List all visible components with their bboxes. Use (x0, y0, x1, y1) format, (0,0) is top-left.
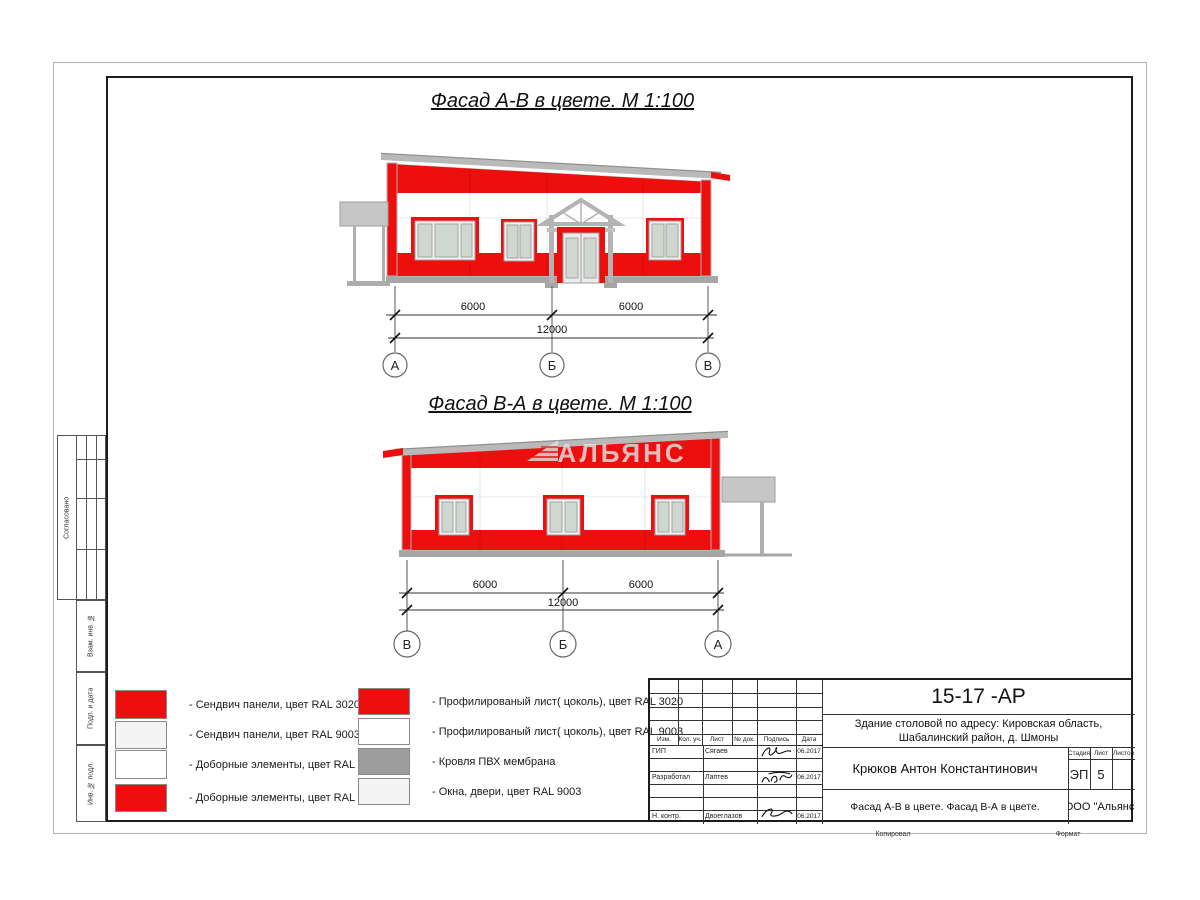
window-1 (411, 217, 479, 264)
sign-date: 06.2017 (796, 745, 822, 758)
legend-label: - Доборные элементы, цвет RAL 9003 (189, 759, 382, 771)
legend-swatch (115, 690, 167, 719)
signer-role: Н. контр. (652, 810, 702, 823)
facade2-drawing: АЛЬЯНС (375, 425, 805, 670)
signer-name: Двоеглазов (705, 810, 755, 823)
sheet-value: 5 (1090, 759, 1112, 789)
title-block: Изм. Кол. уч. Лист № док. Подпись Дата Г… (648, 678, 1133, 822)
project-name: Здание столовой по адресу: Кировская обл… (822, 714, 1135, 747)
dim-label-right: 6000 (619, 301, 643, 313)
stage-value: ЭП (1068, 759, 1090, 789)
approval-table-line (86, 436, 87, 599)
sheet-title: Фасад А-В в цвете. Фасад В-А в цвете. (822, 789, 1068, 824)
approval-table-line (76, 459, 105, 460)
col-header: Дата (796, 734, 822, 745)
dim-label-left: 6000 (461, 301, 485, 313)
signature (757, 769, 796, 785)
legend-label: - Профилированый лист( цоколь), цвет RAL… (432, 726, 683, 738)
sheet-header: Лист (1090, 747, 1112, 759)
window-3 (646, 218, 684, 263)
facade2-title: Фасад В-А в цвете. М 1:100 (325, 393, 795, 416)
legend-swatch (358, 688, 410, 715)
facade1-title: Фасад А-В в цвете. М 1:100 (330, 90, 795, 113)
col-header: Лист (702, 734, 732, 745)
signature-stroke (759, 770, 795, 785)
signer-role: ГИП (652, 745, 702, 758)
project-line1: Здание столовой по адресу: Кировская обл… (855, 717, 1103, 731)
legend-swatch (358, 778, 410, 805)
legend-item: - Сендвич панели, цвет RAL 9003 (115, 721, 360, 749)
podp-data-box: Подп. и дата (76, 672, 106, 745)
approval-table: Согласовано (57, 435, 106, 600)
axis-bubbles: А Б В (383, 353, 720, 377)
sign-date: 06.2017 (796, 810, 822, 823)
organization: ООО "Альянс" (1068, 789, 1135, 824)
col-header: Кол. уч. (678, 734, 702, 745)
legend-label: - Сендвич панели, цвет RAL 3020 (189, 699, 360, 711)
window-3 (651, 495, 689, 539)
building-base (399, 550, 725, 557)
facade2-dimensions (399, 560, 724, 631)
signature (757, 804, 796, 822)
window-2 (501, 219, 537, 264)
facade1-drawing: 6000 6000 12000 А Б В (330, 140, 770, 388)
legend-label: - Кровля ПВХ мембрана (432, 756, 555, 768)
legend-swatch (115, 750, 167, 779)
legend-label: - Профилированый лист( цоколь), цвет RAL… (432, 696, 683, 708)
drawing-sheet: Согласовано Взам. инв. № Подп. и дата Ин… (0, 0, 1200, 900)
approval-table-line (76, 549, 105, 550)
dim-label-right: 6000 (629, 579, 653, 591)
vzam-inv-box: Взам. инв. № (76, 600, 106, 672)
sheets-header: Листов (1112, 747, 1135, 759)
col-header: Изм. (650, 734, 678, 745)
axis-letter: Б (559, 637, 568, 652)
axis-bubbles: В Б А (394, 631, 731, 657)
legend-label: - Окна, двери, цвет RAL 9003 (432, 786, 581, 798)
corner-trim (701, 180, 711, 276)
window-2 (543, 495, 584, 539)
signature-stroke (759, 744, 795, 759)
legend-swatch (358, 748, 410, 775)
format-label: Формат (1028, 831, 1108, 838)
approval-table-line (96, 436, 97, 599)
approval-table-line (76, 498, 105, 499)
watermark-text: АЛЬЯНС (557, 438, 686, 468)
signer-role: Разработал (652, 771, 702, 784)
legend-item: - Профилированый лист( цоколь), цвет RAL… (358, 718, 683, 745)
col-header: № док. (732, 734, 757, 745)
legend-item: - Окна, двери, цвет RAL 9003 (358, 778, 581, 805)
signer-name: Сягаев (705, 745, 755, 758)
axis-letter: А (714, 637, 723, 652)
axis-letter: Б (548, 358, 557, 373)
project-line2: Шабалинский район, д. Шмоны (899, 731, 1059, 745)
dim-label-total: 12000 (548, 597, 579, 609)
sign-date: 06.2017 (796, 771, 822, 784)
window-1 (435, 495, 473, 539)
side-canopy (340, 202, 388, 226)
canopy-post (382, 226, 385, 282)
sheets-value (1112, 759, 1135, 789)
inv-podl-box: Инв. № подл. (76, 745, 106, 822)
legend-item: - Доборные элементы, цвет RAL 9003 (115, 750, 382, 779)
corner-trim (711, 434, 720, 550)
legend-swatch (358, 718, 410, 745)
corner-trim (402, 450, 411, 550)
signature-stroke (759, 805, 795, 821)
side-canopy (722, 477, 775, 502)
canopy-post (353, 226, 356, 282)
stage-header: Стадия (1068, 747, 1090, 759)
legend-item: - Сендвич панели, цвет RAL 3020 (115, 690, 360, 719)
legend-label: - Доборные элементы, цвет RAL 3020 (189, 792, 382, 804)
copied-label: Копировал (843, 831, 943, 838)
inv-podl-label: Инв. № подл. (77, 746, 105, 821)
legend-label: - Сендвич панели, цвет RAL 9003 (189, 729, 360, 741)
approval-table-line (76, 436, 77, 599)
roof-scupper (383, 448, 403, 458)
entrance-door (557, 227, 605, 283)
vzam-inv-label: Взам. инв. № (77, 601, 105, 671)
legend-item: - Доборные элементы, цвет RAL 3020 (115, 784, 382, 812)
signer-name: Лаптев (705, 771, 755, 784)
dim-label-left: 6000 (473, 579, 497, 591)
axis-letter: А (391, 358, 400, 373)
legend-item: - Профилированый лист( цоколь), цвет RAL… (358, 688, 683, 715)
podp-data-label: Подп. и дата (77, 673, 105, 744)
axis-letter: В (403, 637, 412, 652)
axis-letter: В (704, 358, 713, 373)
facade1-dimensions (386, 286, 717, 352)
author-name: Крюков Антон Константинович (822, 747, 1068, 789)
legend-swatch (115, 721, 167, 749)
legend-item: - Кровля ПВХ мембрана (358, 748, 555, 775)
signature (757, 743, 796, 759)
legend-swatch (115, 784, 167, 812)
agreed-label: Согласовано (58, 436, 76, 599)
canopy-post (760, 502, 764, 554)
doc-number: 15-17 -АР (822, 680, 1135, 714)
dim-label-total: 12000 (537, 324, 568, 336)
